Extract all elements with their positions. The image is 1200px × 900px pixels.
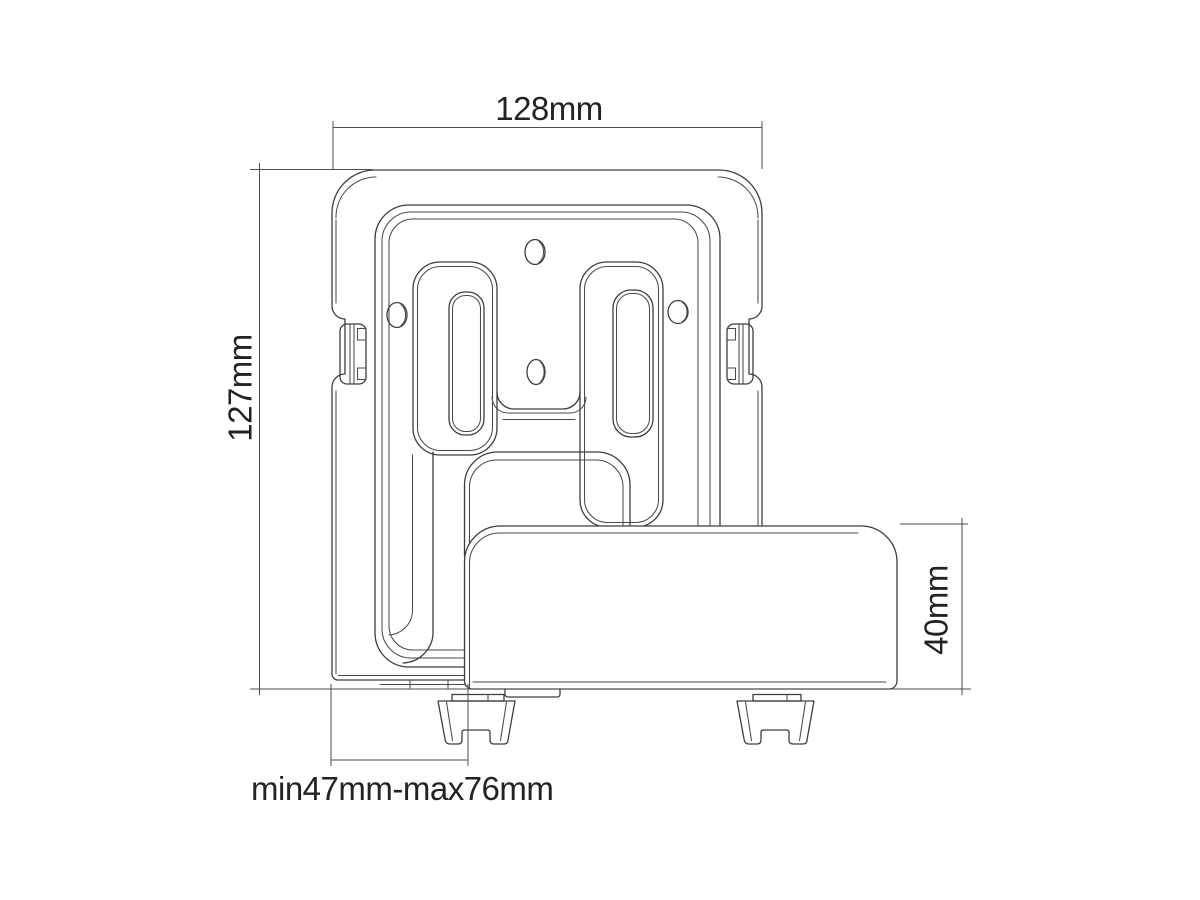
screw-holes — [387, 240, 688, 385]
right-depth-label: 40mm — [918, 565, 955, 655]
channel-tail-outer — [403, 452, 433, 663]
foot-left — [438, 695, 515, 745]
channel-tail-inner — [389, 455, 413, 635]
channel-top-edge — [497, 392, 580, 409]
right-slot-outer — [613, 290, 653, 437]
dimension-bottom-range: min47mm-max76mm — [251, 684, 553, 807]
side-clip-left — [340, 324, 366, 384]
top-width-lines — [333, 121, 762, 169]
dimension-left-height: 127mm — [222, 163, 373, 695]
left-boss-bevel — [418, 267, 493, 451]
left-clip-tab — [340, 324, 366, 384]
dimension-top-width: 128mm — [333, 90, 762, 169]
bottom-range-label: min47mm-max76mm — [251, 770, 553, 807]
left-clip-detail — [350, 324, 366, 384]
left-slot-inner — [453, 296, 481, 432]
right-boss-bevel — [585, 267, 659, 523]
foot-right — [737, 695, 814, 745]
technical-drawing-page: 128mm 127mm 40mm min47mm-max76mm — [0, 0, 1200, 900]
front-tray — [465, 526, 898, 689]
screw-hole-left — [387, 303, 407, 328]
left-height-lines — [250, 163, 373, 695]
channel-bevel-edge — [492, 397, 586, 420]
bottom-range-lines — [331, 684, 468, 766]
mount-bracket-drawing: 128mm 127mm 40mm min47mm-max76mm — [0, 0, 1200, 900]
right-boss-outer — [580, 262, 663, 527]
screw-hole-middle — [527, 360, 545, 385]
screw-hole-top — [525, 240, 545, 265]
under-tray-tab — [505, 689, 560, 697]
foot-left-bar — [452, 695, 504, 702]
tray-outer — [465, 526, 898, 689]
left-height-label: 127mm — [222, 334, 259, 442]
left-slot-outer — [449, 292, 484, 435]
top-width-label: 128mm — [495, 90, 603, 127]
plate-left-bevel-edge — [336, 177, 376, 674]
dimension-right-depth: 40mm — [900, 518, 968, 695]
right-slot-boss — [580, 262, 663, 527]
left-slot-boss — [413, 262, 497, 455]
screw-hole-right — [668, 301, 688, 324]
right-slot-inner — [617, 294, 650, 434]
foot-right-inner-edges — [746, 702, 806, 741]
right-clip-detail — [727, 324, 743, 384]
foot-left-inner-edges — [447, 702, 507, 741]
foot-right-bar — [753, 695, 801, 702]
